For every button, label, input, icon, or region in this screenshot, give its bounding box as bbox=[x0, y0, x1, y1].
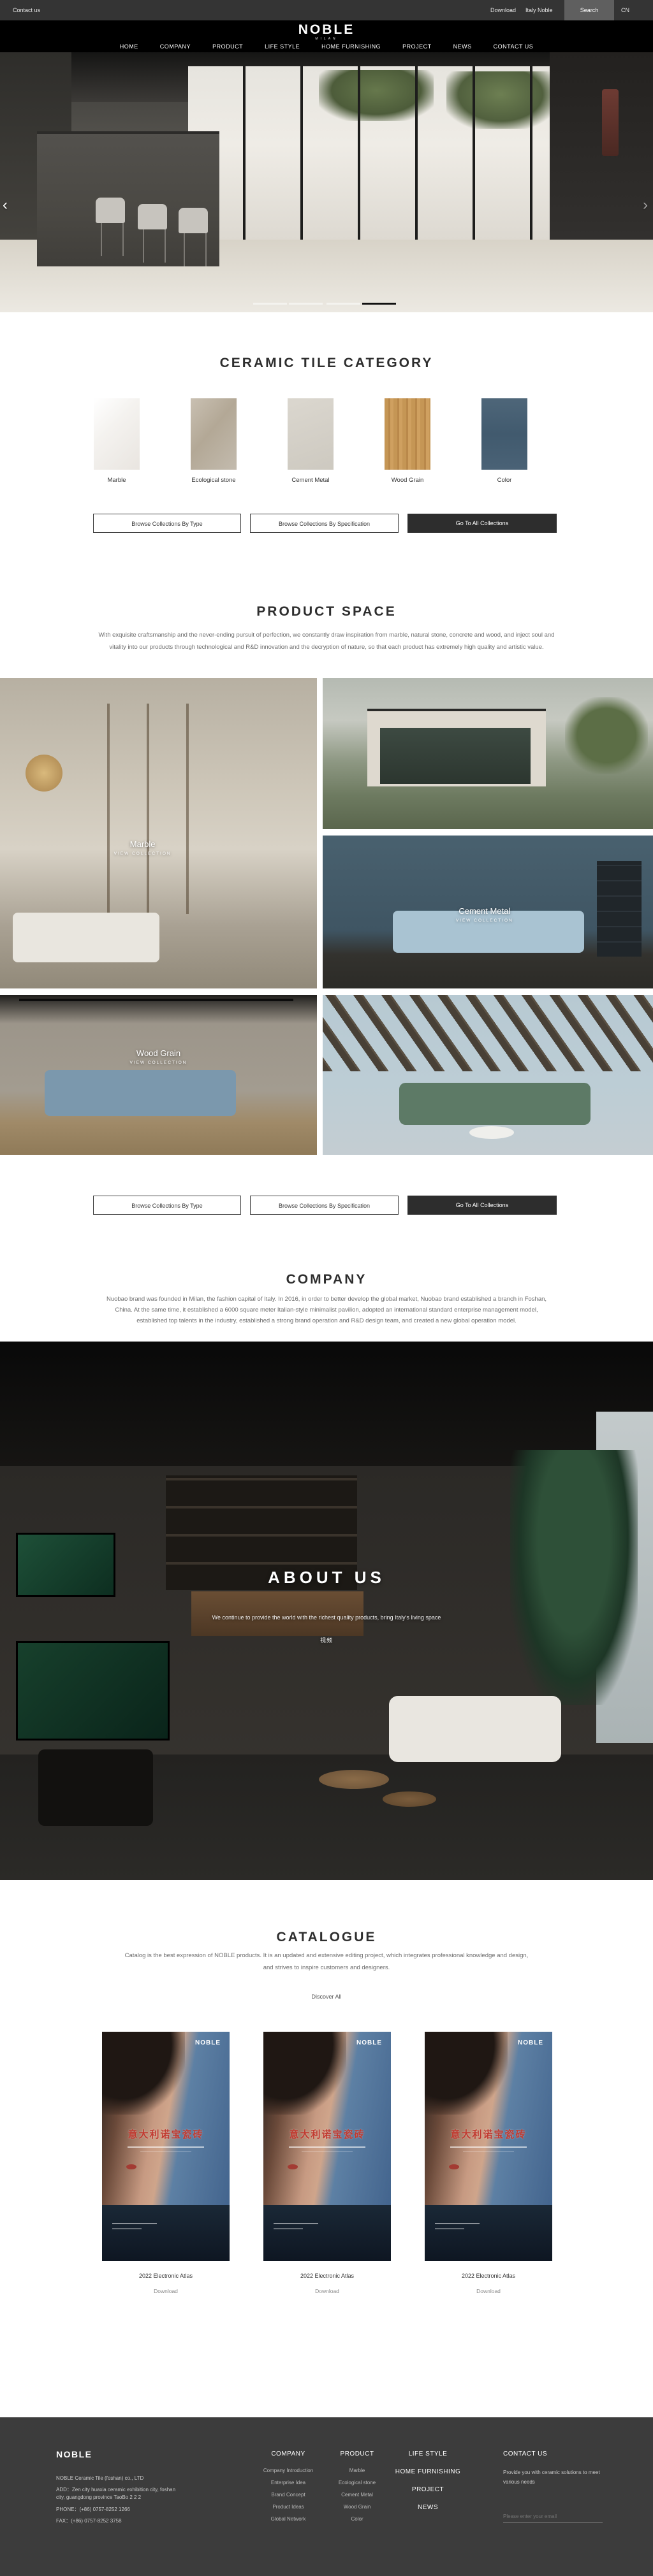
about-us-image: ABOUT US We continue to provide the worl… bbox=[0, 1342, 653, 1880]
partition-screen bbox=[70, 704, 204, 914]
cover-bottom-band bbox=[102, 2205, 230, 2261]
browse-by-type-button[interactable]: Browse Collections By Type bbox=[93, 514, 241, 533]
main-nav: HOME COMPANY PRODUCT LIFE STYLE HOME FUR… bbox=[0, 43, 653, 50]
stool-leg bbox=[184, 233, 185, 266]
company-description: Nuobao brand was founded in Milan, the f… bbox=[103, 1294, 550, 1326]
category-tile-marble[interactable] bbox=[94, 398, 140, 470]
footer-contact-text: Provide you with ceramic solutions to me… bbox=[503, 2468, 600, 2487]
footer-link[interactable]: Company Introduction bbox=[263, 2468, 313, 2473]
category-tile-label: Wood Grain bbox=[359, 477, 456, 484]
language-switch[interactable]: CN bbox=[621, 0, 629, 20]
view-collection-link[interactable]: VIEW COLLECTION bbox=[456, 918, 513, 923]
browse-by-specification-button[interactable]: Browse Collections By Specification bbox=[250, 514, 399, 533]
hero-pagination-bar[interactable] bbox=[326, 303, 360, 305]
catalogue-description: Catalog is the best expression of NOBLE … bbox=[122, 1950, 531, 1974]
footer-col-product-title[interactable]: PRODUCT bbox=[341, 2450, 374, 2457]
sofa-shape bbox=[45, 1070, 236, 1116]
stool-leg bbox=[122, 223, 124, 256]
cover-deco-line bbox=[274, 2228, 303, 2229]
product-space-image-marble[interactable]: Marble VIEW COLLECTION bbox=[0, 678, 317, 988]
hero-closet bbox=[550, 52, 653, 264]
round-mirror bbox=[26, 755, 62, 792]
italy-noble-link[interactable]: Italy Noble bbox=[525, 0, 553, 20]
cover-deco-line bbox=[140, 2152, 191, 2152]
about-us-title: ABOUT US bbox=[0, 1568, 653, 1588]
cover-brand-logo: NOBLE bbox=[518, 2039, 543, 2046]
cover-deco-line bbox=[112, 2228, 142, 2229]
black-armchair bbox=[38, 1749, 153, 1826]
brand-logo-subtitle: MILAN bbox=[0, 37, 653, 41]
hero-pagination-bar-active[interactable] bbox=[362, 303, 396, 305]
collection-name: Wood Grain bbox=[130, 1048, 187, 1058]
hero-slider: ‹ › bbox=[0, 52, 653, 312]
nav-item-home-furnishing[interactable]: HOME FURNISHING bbox=[321, 43, 381, 50]
cover-bottom-band bbox=[263, 2205, 391, 2261]
hero-garment bbox=[602, 89, 619, 156]
stool-leg bbox=[165, 229, 166, 263]
cover-deco-line bbox=[128, 2146, 204, 2148]
footer-link[interactable]: Wood Grain bbox=[344, 2504, 371, 2510]
cover-bottom-band bbox=[425, 2205, 552, 2261]
product-space-description: With exquisite craftsmanship and the nev… bbox=[91, 630, 562, 653]
cover-deco-line bbox=[112, 2223, 157, 2224]
cover-title-cn: 意大利诺宝瓷砖 bbox=[263, 2127, 391, 2141]
nav-item-home[interactable]: HOME bbox=[120, 43, 138, 50]
about-us-description: We continue to provide the world with th… bbox=[189, 1612, 464, 1623]
category-tile-cement-metal[interactable] bbox=[288, 398, 334, 470]
product-space-title: PRODUCT SPACE bbox=[0, 604, 653, 619]
collection-label-cement-metal: Cement Metal VIEW COLLECTION bbox=[456, 906, 513, 923]
category-tile-color[interactable] bbox=[481, 398, 527, 470]
footer-link[interactable]: Enterprise Idea bbox=[271, 2480, 305, 2486]
collection-name: Marble bbox=[114, 839, 172, 849]
view-collection-link[interactable]: VIEW COLLECTION bbox=[114, 851, 172, 856]
catalogue-item-name: 2022 Electronic Atlas bbox=[102, 2273, 230, 2279]
discover-all-link[interactable]: Discover All bbox=[0, 1994, 653, 2000]
brand-logo[interactable]: NOBLE bbox=[0, 22, 653, 38]
nav-item-news[interactable]: NEWS bbox=[453, 43, 472, 50]
collection-label-marble: Marble VIEW COLLECTION bbox=[114, 839, 172, 856]
tree-shape bbox=[565, 697, 648, 774]
topbar: Contact us Download Italy Noble Search C… bbox=[0, 0, 653, 20]
footer-logo[interactable]: NOBLE bbox=[56, 2449, 92, 2459]
footer-link[interactable]: Brand Concept bbox=[271, 2492, 305, 2498]
about-video-link[interactable]: 视频 bbox=[0, 1636, 653, 1644]
ceiling-lights bbox=[0, 1342, 653, 1466]
product-space-image-cement-metal[interactable]: Cement Metal VIEW COLLECTION bbox=[323, 836, 653, 988]
collection-label-wood-grain: Wood Grain VIEW COLLECTION bbox=[130, 1048, 187, 1065]
footer-link[interactable]: Product Ideas bbox=[272, 2504, 304, 2510]
cover-title-cn: 意大利诺宝瓷砖 bbox=[425, 2127, 552, 2141]
collection-name: Cement Metal bbox=[456, 906, 513, 916]
tv-screen bbox=[16, 1641, 170, 1740]
nav-item-contact-us[interactable]: CONTACT US bbox=[494, 43, 534, 50]
catalogue-download-link[interactable]: Download bbox=[102, 2288, 230, 2294]
footer-link[interactable]: Color bbox=[351, 2516, 363, 2522]
cover-brand-logo: NOBLE bbox=[195, 2039, 221, 2046]
email-subscribe-input[interactable] bbox=[503, 2511, 603, 2522]
cover-lips-art bbox=[288, 2164, 298, 2169]
sofa-shape bbox=[13, 913, 159, 962]
cover-art bbox=[102, 2032, 185, 2115]
browse-by-specification-button[interactable]: Browse Collections By Specification bbox=[250, 1196, 399, 1215]
footer-col-company-title[interactable]: COMPANY bbox=[271, 2450, 305, 2457]
wood-slat-wall bbox=[323, 995, 653, 1071]
stool-seat bbox=[179, 208, 208, 233]
catalogue-item-name: 2022 Electronic Atlas bbox=[425, 2273, 552, 2279]
white-sofa bbox=[389, 1696, 561, 1762]
nav-item-life-style[interactable]: LIFE STYLE bbox=[265, 43, 300, 50]
download-link[interactable]: Download bbox=[490, 0, 516, 20]
stool-seat bbox=[96, 198, 125, 223]
company-section-title: COMPANY bbox=[0, 1272, 653, 1287]
footer: NOBLE NOBLE Ceramic Tile (foshan) co., L… bbox=[0, 2417, 653, 2576]
product-space-image-wood-grain[interactable]: Wood Grain VIEW COLLECTION bbox=[0, 995, 317, 1155]
category-tile-wood-grain[interactable] bbox=[385, 398, 430, 470]
pavilion-glass bbox=[380, 728, 531, 784]
footer-address-line2: city, guangdong province TaoBo 2 2 2 bbox=[56, 2494, 141, 2500]
go-to-all-collections-button[interactable]: Go To All Collections bbox=[407, 514, 557, 533]
catalogue-cover[interactable]: NOBLE 意大利诺宝瓷砖 bbox=[102, 2032, 230, 2261]
hero-pagination-bar[interactable] bbox=[253, 303, 287, 305]
footer-address-line1: ADD：Zen city huaxia ceramic exhibition c… bbox=[56, 2486, 175, 2493]
sofa-shape bbox=[399, 1083, 591, 1125]
page: Contact us Download Italy Noble Search C… bbox=[0, 0, 653, 2576]
hero-window-frames bbox=[188, 66, 552, 240]
footer-nav-home-furnishing[interactable]: HOME FURNISHING bbox=[395, 2468, 461, 2475]
contact-us-link[interactable]: Contact us bbox=[13, 0, 40, 20]
header: NOBLE MILAN HOME COMPANY PRODUCT LIFE ST… bbox=[0, 20, 653, 52]
catalogue-download-link[interactable]: Download bbox=[425, 2288, 552, 2294]
cover-lips-art bbox=[449, 2164, 459, 2169]
catalogue-item-name: 2022 Electronic Atlas bbox=[263, 2273, 391, 2279]
cover-deco-line bbox=[274, 2223, 318, 2224]
go-to-all-collections-button[interactable]: Go To All Collections bbox=[407, 1196, 557, 1215]
catalogue-section-title: CATALOGUE bbox=[0, 1930, 653, 1945]
cover-title-cn: 意大利诺宝瓷砖 bbox=[102, 2127, 230, 2141]
shelf-shape bbox=[597, 861, 642, 957]
cover-deco-line bbox=[302, 2152, 353, 2152]
category-tile-ecological-stone[interactable] bbox=[191, 398, 237, 470]
stool-leg bbox=[101, 223, 102, 256]
category-tile-label: Marble bbox=[68, 477, 165, 484]
footer-link[interactable]: Marble bbox=[349, 2468, 365, 2473]
footer-link[interactable]: Global Network bbox=[271, 2516, 306, 2522]
hero-pagination-bar[interactable] bbox=[289, 303, 323, 305]
category-section-title: CERAMIC TILE CATEGORY bbox=[0, 356, 653, 371]
cover-deco-line bbox=[463, 2152, 514, 2152]
hero-next-icon[interactable]: › bbox=[643, 198, 648, 213]
category-tile-label: Ecological stone bbox=[165, 477, 262, 484]
cover-deco-line bbox=[289, 2146, 365, 2148]
footer-fax: FAX：(+86) 0757-8252 3758 bbox=[56, 2517, 122, 2524]
footer-nav-life-style[interactable]: LIFE STYLE bbox=[409, 2450, 448, 2457]
category-tile-label: Cement Metal bbox=[262, 477, 359, 484]
footer-link[interactable]: Ecological stone bbox=[339, 2480, 376, 2486]
catalogue-cover[interactable]: NOBLE 意大利诺宝瓷砖 bbox=[263, 2032, 391, 2261]
track-light bbox=[19, 999, 293, 1001]
nav-item-company[interactable]: COMPANY bbox=[160, 43, 191, 50]
stool-leg bbox=[143, 229, 144, 263]
cover-deco-line bbox=[435, 2228, 464, 2229]
catalogue-cover[interactable]: NOBLE 意大利诺宝瓷砖 bbox=[425, 2032, 552, 2261]
category-tile-label: Color bbox=[456, 477, 553, 484]
footer-phone: PHONE：(+86) 0757-8252 1266 bbox=[56, 2506, 130, 2513]
cover-lips-art bbox=[126, 2164, 136, 2169]
stool-seat bbox=[138, 204, 167, 229]
coffee-table bbox=[319, 1770, 389, 1789]
footer-company-name: NOBLE Ceramic Tile (foshan) co., LTD bbox=[56, 2475, 143, 2481]
product-space-image-lifestyle[interactable] bbox=[323, 995, 653, 1155]
cover-brand-logo: NOBLE bbox=[356, 2039, 382, 2046]
hero-prev-icon[interactable]: ‹ bbox=[3, 198, 8, 213]
catalogue-download-link[interactable]: Download bbox=[263, 2288, 391, 2294]
cover-deco-line bbox=[450, 2146, 527, 2148]
footer-nav-project[interactable]: PROJECT bbox=[412, 2486, 444, 2493]
view-collection-link[interactable]: VIEW COLLECTION bbox=[130, 1060, 187, 1065]
product-space-image-exterior[interactable] bbox=[323, 678, 653, 829]
footer-link[interactable]: Cement Metal bbox=[341, 2492, 373, 2498]
cover-art bbox=[425, 2032, 508, 2115]
footer-contact-title[interactable]: CONTACT US bbox=[503, 2450, 547, 2457]
cover-deco-line bbox=[435, 2223, 480, 2224]
table-shape bbox=[469, 1126, 514, 1139]
coffee-table bbox=[383, 1791, 436, 1807]
hero-kitchen-island bbox=[37, 134, 219, 266]
stool-leg bbox=[205, 233, 207, 266]
search-button[interactable]: Search bbox=[564, 0, 614, 20]
cover-art bbox=[263, 2032, 346, 2115]
browse-by-type-button[interactable]: Browse Collections By Type bbox=[93, 1196, 241, 1215]
nav-item-product[interactable]: PRODUCT bbox=[212, 43, 243, 50]
nav-item-project[interactable]: PROJECT bbox=[402, 43, 432, 50]
footer-nav-news[interactable]: NEWS bbox=[418, 2504, 438, 2511]
